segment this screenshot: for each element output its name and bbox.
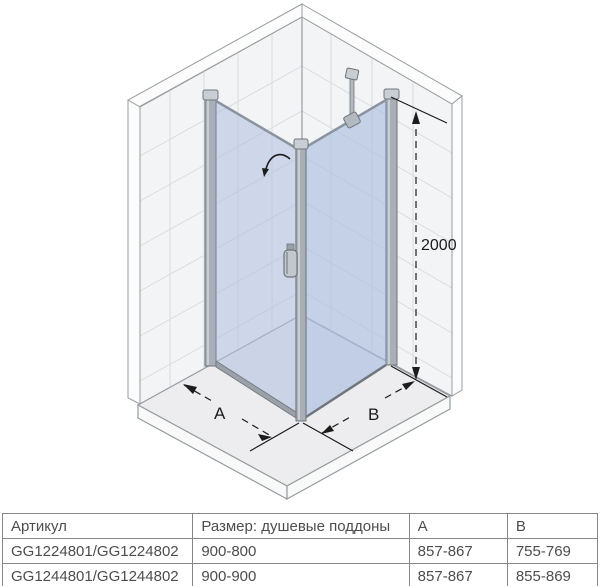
height-dim-label: 2000 <box>421 237 457 254</box>
corner-post <box>294 139 308 421</box>
header-a: A <box>409 514 507 539</box>
table-header-row: Артикул Размер: душевые поддоны A B <box>3 514 598 539</box>
table-cell: 900-800 <box>193 539 409 564</box>
table-cell: GG1224801/GG1224802 <box>3 539 193 564</box>
table-cell: 900-900 <box>193 564 409 586</box>
table-cell: 755-769 <box>507 539 597 564</box>
header-b: B <box>507 514 597 539</box>
page: 2000 A B Артикул Размер: душевые поддоны <box>0 0 600 586</box>
table-row: GG1244801/GG1244802900-900857-867855-869 <box>3 564 598 586</box>
panel-width-label: B <box>368 405 379 424</box>
table-cell: 857-867 <box>409 564 507 586</box>
glass-side-panel <box>306 100 386 417</box>
door-width-label: A <box>214 404 226 423</box>
left-wall-end-strip <box>128 100 140 404</box>
support-bar-top-bracket <box>345 68 359 80</box>
table-cell: 857-867 <box>409 539 507 564</box>
spec-table: Артикул Размер: душевые поддоны A B GG12… <box>2 513 598 586</box>
table-row: GG1224801/GG1224802900-800857-867755-769 <box>3 539 598 564</box>
header-article: Артикул <box>3 514 193 539</box>
table-cell: GG1244801/GG1244802 <box>3 564 193 586</box>
hinge-profile-cap <box>203 90 218 100</box>
header-size: Размер: душевые поддоны <box>193 514 409 539</box>
table-cell: 855-869 <box>507 564 597 586</box>
shower-enclosure-diagram: 2000 A B <box>0 0 600 512</box>
corner-post-cap <box>294 139 308 149</box>
